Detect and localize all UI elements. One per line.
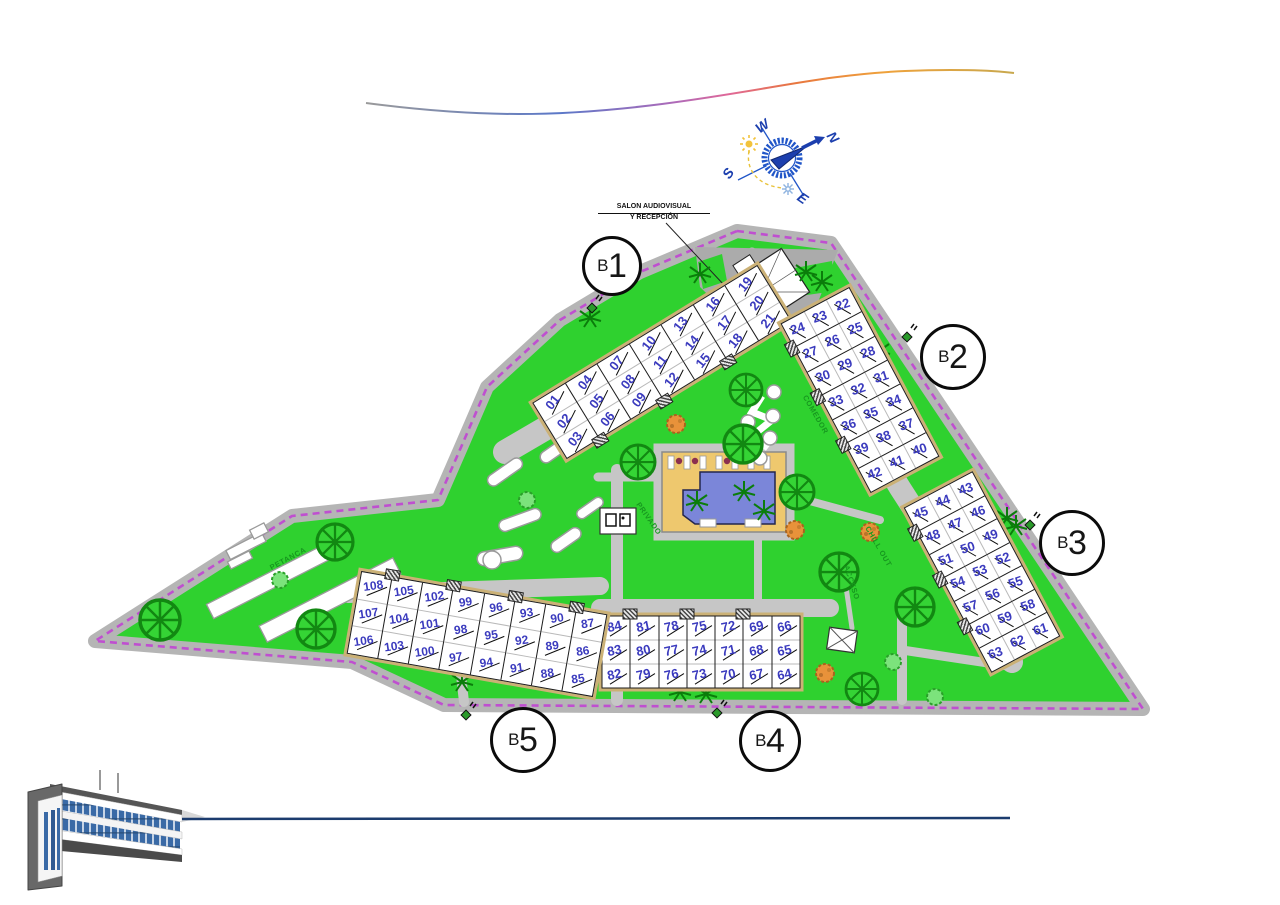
- unit-number: 52: [994, 549, 1012, 568]
- reception-annotation-line1: SALON AUDIOVISUAL: [598, 203, 710, 214]
- badge-b5: B5: [490, 707, 556, 773]
- unit-number: 38: [875, 427, 893, 446]
- unit-number: 64: [776, 665, 793, 683]
- badge-b4-prefix: B: [755, 731, 766, 751]
- unit-number: 88: [540, 665, 555, 681]
- unit-number: 33: [827, 391, 845, 410]
- unit-79[interactable]: 79: [631, 664, 658, 688]
- unit-number: 56: [984, 585, 1002, 604]
- unit-number: 42: [865, 463, 883, 482]
- unit-number: 21: [757, 311, 778, 332]
- unit-85[interactable]: 85: [562, 663, 596, 695]
- unit-number: 84: [606, 617, 623, 635]
- unit-number: 85: [571, 670, 586, 686]
- pool-area: [662, 452, 786, 532]
- unit-number: 59: [996, 608, 1014, 627]
- reception-annotation-line2: Y RECEPCIÓN: [630, 214, 678, 221]
- unit-number: 50: [959, 538, 977, 557]
- unit-number: 02: [553, 410, 574, 431]
- compass-east-label: E: [794, 189, 811, 208]
- unit-91[interactable]: 91: [501, 653, 535, 685]
- unit-94[interactable]: 94: [470, 647, 504, 679]
- unit-number: 53: [971, 561, 989, 580]
- unit-number: 75: [691, 617, 708, 635]
- unit-number: 71: [719, 641, 736, 659]
- unit-number: 74: [691, 641, 708, 659]
- unit-number: 43: [956, 479, 974, 498]
- unit-number: 80: [634, 641, 651, 659]
- unit-number: 78: [663, 617, 680, 635]
- unit-number: 96: [488, 600, 503, 616]
- plan-graphics: N W S E: [0, 0, 1280, 905]
- unit-75[interactable]: 75: [687, 617, 714, 640]
- unit-74[interactable]: 74: [687, 640, 714, 664]
- unit-number: 65: [776, 641, 793, 659]
- unit-number: 106: [353, 632, 375, 649]
- unit-number: 104: [388, 610, 410, 627]
- reception-annotation: SALON AUDIOVISUAL Y RECEPCIÓN: [598, 203, 710, 223]
- unit-number: 47: [946, 514, 964, 533]
- unit-number: 93: [519, 605, 534, 621]
- unit-97[interactable]: 97: [440, 642, 474, 674]
- unit-number: 40: [910, 439, 928, 458]
- unit-69[interactable]: 69: [744, 617, 771, 640]
- decorative-gradient-curve: [366, 70, 1014, 114]
- unit-group: 696867: [743, 617, 771, 688]
- unit-83[interactable]: 83: [603, 640, 630, 664]
- unit-68[interactable]: 68: [744, 640, 771, 664]
- unit-number: 25: [846, 319, 864, 338]
- badge-b4: B4: [739, 710, 801, 772]
- unit-number: 19: [734, 274, 755, 295]
- badge-b2-prefix: B: [938, 347, 949, 367]
- unit-number: 100: [414, 643, 436, 660]
- unit-67[interactable]: 67: [744, 664, 771, 688]
- unit-73[interactable]: 73: [687, 664, 714, 688]
- building-render: [28, 770, 205, 890]
- unit-number: 73: [691, 665, 708, 683]
- unit-number: 35: [862, 403, 880, 422]
- unit-number: 97: [448, 649, 463, 665]
- unit-number: 77: [663, 641, 680, 659]
- unit-number: 91: [509, 660, 524, 676]
- unit-number: 32: [849, 379, 867, 398]
- unit-number: 48: [924, 526, 942, 545]
- unit-number: 79: [634, 665, 651, 683]
- unit-82[interactable]: 82: [603, 664, 630, 688]
- unit-group: 848382: [603, 617, 630, 688]
- unit-number: 10: [638, 333, 659, 354]
- unit-number: 46: [969, 502, 987, 521]
- unit-number: 101: [419, 616, 441, 633]
- winter-sun-icon: [782, 183, 794, 195]
- unit-number: 31: [872, 367, 890, 386]
- badge-b3-number: 3: [1068, 526, 1087, 560]
- unit-number: 15: [693, 350, 714, 371]
- unit-number: 108: [362, 578, 384, 595]
- unit-number: 06: [597, 409, 618, 430]
- unit-106[interactable]: 106: [348, 626, 382, 658]
- unit-number: 54: [949, 573, 967, 592]
- compass-south-label: S: [719, 164, 738, 181]
- block-b4-building: 8483828180797877767574737271706968676665…: [602, 616, 801, 689]
- unit-number: 98: [453, 622, 468, 638]
- unit-100[interactable]: 100: [409, 636, 443, 668]
- unit-number: 34: [885, 391, 903, 410]
- badge-b2-number: 2: [949, 340, 968, 374]
- unit-number: 86: [575, 643, 590, 659]
- unit-number: 36: [839, 415, 857, 434]
- unit-number: 76: [663, 665, 680, 683]
- unit-78[interactable]: 78: [659, 617, 686, 640]
- unit-number: 37: [898, 415, 916, 434]
- unit-number: 89: [545, 638, 560, 654]
- unit-number: 90: [550, 611, 565, 627]
- unit-number: 45: [911, 503, 929, 522]
- unit-number: 22: [833, 295, 851, 314]
- unit-71[interactable]: 71: [716, 640, 743, 664]
- compass-west-label: W: [752, 115, 773, 137]
- unit-number: 94: [479, 654, 494, 670]
- unit-number: 41: [888, 451, 906, 470]
- unit-number: 87: [580, 616, 595, 632]
- sun-icon: [740, 135, 758, 153]
- unit-number: 49: [981, 526, 999, 545]
- badge-b3-prefix: B: [1057, 533, 1068, 553]
- unit-number: 51: [936, 550, 954, 569]
- unit-number: 72: [719, 617, 736, 635]
- unit-number: 70: [719, 665, 736, 683]
- compass-rose: N W S E: [719, 115, 843, 208]
- unit-number: 44: [934, 491, 952, 510]
- unit-group: 757473: [686, 617, 714, 688]
- unit-76[interactable]: 76: [659, 664, 686, 688]
- unit-number: 67: [748, 665, 765, 683]
- unit-number: 58: [1019, 596, 1037, 615]
- unit-number: 63: [986, 644, 1004, 663]
- unit-88[interactable]: 88: [532, 658, 566, 690]
- unit-number: 103: [383, 638, 405, 655]
- utility-box: [600, 508, 636, 534]
- unit-number: 39: [852, 439, 870, 458]
- unit-number: 11: [650, 351, 670, 371]
- unit-number: 08: [617, 371, 638, 392]
- unit-number: 60: [974, 620, 992, 639]
- unit-number: 102: [424, 588, 446, 605]
- unit-number: 28: [859, 343, 877, 362]
- unit-number: 99: [458, 594, 473, 610]
- badge-b1-number: 1: [608, 249, 627, 283]
- compass-north-label: N: [824, 128, 843, 146]
- transformer-box: [827, 627, 858, 653]
- unit-80[interactable]: 80: [631, 640, 658, 664]
- unit-number: 14: [681, 332, 702, 353]
- unit-number: 55: [1006, 572, 1024, 591]
- unit-number: 13: [670, 313, 691, 334]
- unit-number: 09: [629, 389, 650, 410]
- unit-64[interactable]: 64: [772, 664, 799, 688]
- badge-b5-prefix: B: [508, 730, 519, 750]
- badge-b1: B1: [582, 236, 642, 296]
- unit-81[interactable]: 81: [631, 617, 658, 640]
- unit-number: 23: [811, 307, 829, 326]
- unit-number: 107: [358, 605, 380, 622]
- unit-number: 17: [714, 312, 735, 333]
- unit-number: 16: [702, 293, 723, 314]
- navy-baseline: [182, 818, 1010, 819]
- unit-70[interactable]: 70: [716, 664, 743, 688]
- unit-number: 105: [393, 583, 415, 600]
- unit-number: 18: [725, 330, 746, 351]
- unit-number: 26: [824, 331, 842, 350]
- badge-b5-number: 5: [519, 723, 538, 757]
- unit-number: 68: [748, 641, 765, 659]
- unit-number: 05: [585, 390, 606, 411]
- unit-number: 95: [483, 627, 498, 643]
- unit-number: 12: [661, 370, 682, 391]
- unit-number: 27: [801, 343, 819, 362]
- badge-b3: B3: [1039, 510, 1105, 576]
- unit-number: 07: [606, 352, 627, 373]
- unit-group: 818079: [630, 617, 658, 688]
- unit-number: 66: [776, 617, 793, 635]
- unit-number: 92: [514, 632, 529, 648]
- site-plan-page: N W S E 0: [0, 0, 1280, 905]
- unit-65[interactable]: 65: [772, 640, 799, 664]
- unit-number: 03: [565, 429, 586, 450]
- unit-number: 61: [1031, 619, 1049, 638]
- unit-66[interactable]: 66: [772, 617, 799, 640]
- unit-number: 20: [746, 292, 767, 313]
- badge-b4-number: 4: [766, 724, 785, 758]
- badge-b2: B2: [920, 324, 986, 390]
- unit-72[interactable]: 72: [716, 617, 743, 640]
- unit-number: 30: [814, 367, 832, 386]
- unit-number: 29: [836, 355, 854, 374]
- badge-b1-prefix: B: [597, 256, 608, 276]
- unit-group: 727170: [715, 617, 743, 688]
- unit-group: 787776: [658, 617, 686, 688]
- unit-number: 83: [606, 641, 623, 659]
- unit-number: 24: [788, 319, 806, 338]
- unit-number: 81: [634, 617, 651, 635]
- unit-number: 57: [961, 597, 979, 616]
- unit-number: 01: [542, 392, 563, 413]
- unit-number: 62: [1009, 631, 1027, 650]
- unit-84[interactable]: 84: [603, 617, 630, 640]
- unit-77[interactable]: 77: [659, 640, 686, 664]
- unit-group: 666564: [771, 617, 799, 688]
- unit-number: 82: [606, 665, 623, 683]
- unit-number: 04: [574, 372, 595, 393]
- unit-number: 69: [748, 617, 765, 635]
- unit-103[interactable]: 103: [378, 631, 412, 663]
